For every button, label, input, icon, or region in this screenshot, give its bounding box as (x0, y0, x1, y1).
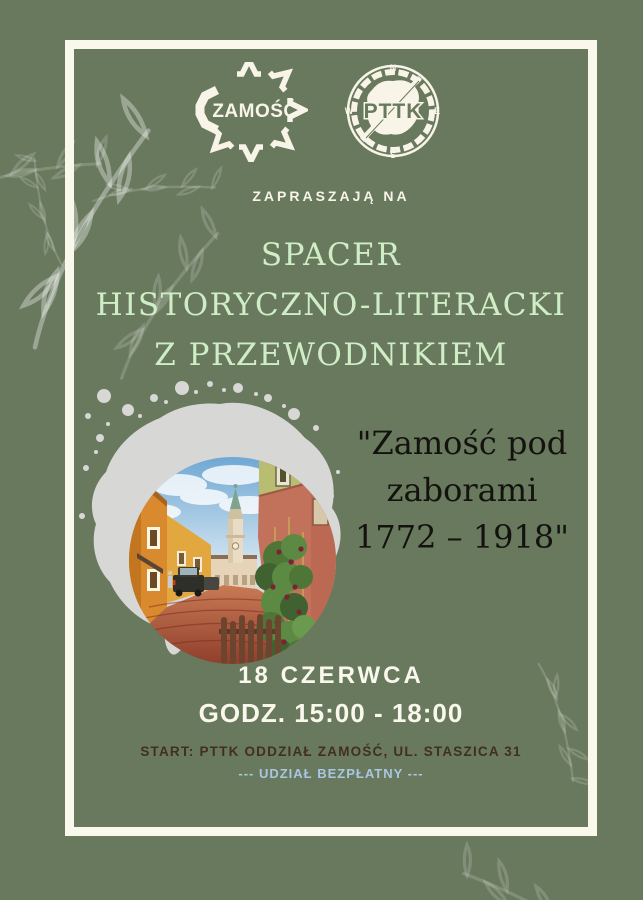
compass-north-label: N (390, 63, 397, 73)
event-title: SPACER HISTORYCZNO-LITERACKI Z PRZEWODNI… (50, 230, 612, 380)
invite-label: ZAPRASZAJĄ NA (65, 188, 597, 204)
zamosc-logo-label: ZAMOŚĆ (212, 100, 297, 122)
compass-south-label: S (390, 150, 396, 160)
event-start-address: START: PTTK ODDZIAŁ ZAMOŚĆ, UL. STASZICA… (65, 744, 597, 759)
quote-line: zaborami (338, 467, 586, 514)
pttk-logo-label: PTTK (364, 100, 423, 123)
compass-east-label: E (434, 106, 440, 116)
event-title-line: Z PRZEWODNIKIEM (50, 330, 612, 380)
compass-west-label: W (345, 106, 354, 116)
street-scene-illustration (129, 457, 336, 664)
quote-line: 1772 – 1918" (338, 514, 586, 561)
event-time: GODZ. 15:00 - 18:00 (65, 698, 597, 729)
event-title-line: HISTORYCZNO-LITERACKI (50, 280, 612, 330)
event-date: 18 CZERWCA (65, 662, 597, 690)
pttk-compass-logo: PTTK N E S W (344, 60, 442, 160)
quote-line: "Zamość pod (338, 420, 586, 467)
admission-free-note: --- UDZIAŁ BEZPŁATNY --- (65, 766, 597, 781)
zamosc-street-circle-photo (129, 457, 336, 664)
event-title-line: SPACER (50, 230, 612, 280)
zamosc-fortress-logo: ZAMOŚĆ (193, 62, 308, 162)
event-quote: "Zamość pod zaborami 1772 – 1918" (338, 420, 586, 561)
